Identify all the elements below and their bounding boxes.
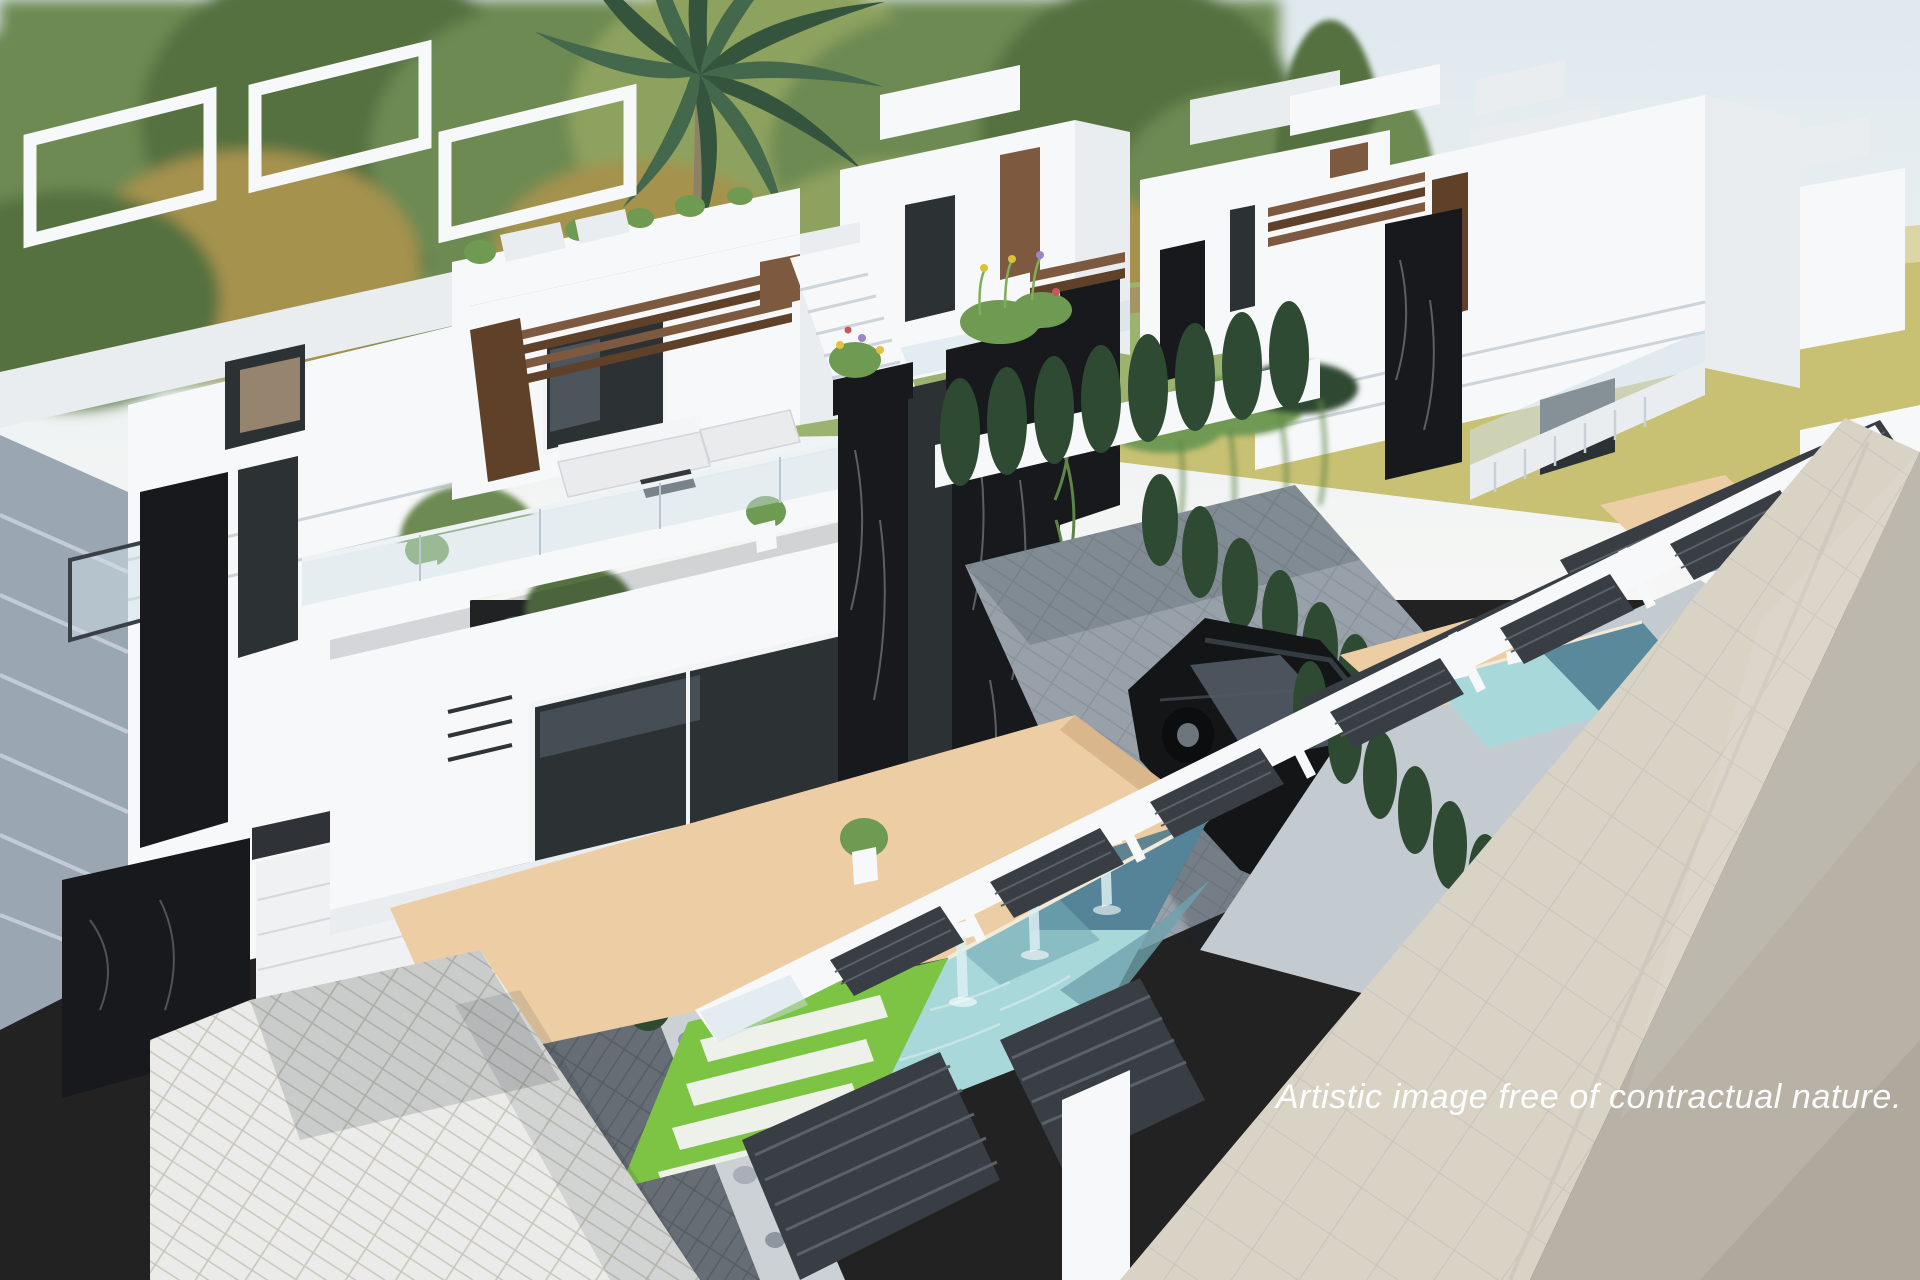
white-planter-pot [852, 847, 878, 885]
marble-pillar-right [1385, 208, 1462, 480]
watermark-caption: Artistic image free of contractual natur… [1276, 1078, 1902, 1117]
render-image: Artistic image free of contractual natur… [0, 0, 1920, 1280]
marble-entry [140, 472, 228, 848]
fence-pillar [1062, 1070, 1130, 1280]
